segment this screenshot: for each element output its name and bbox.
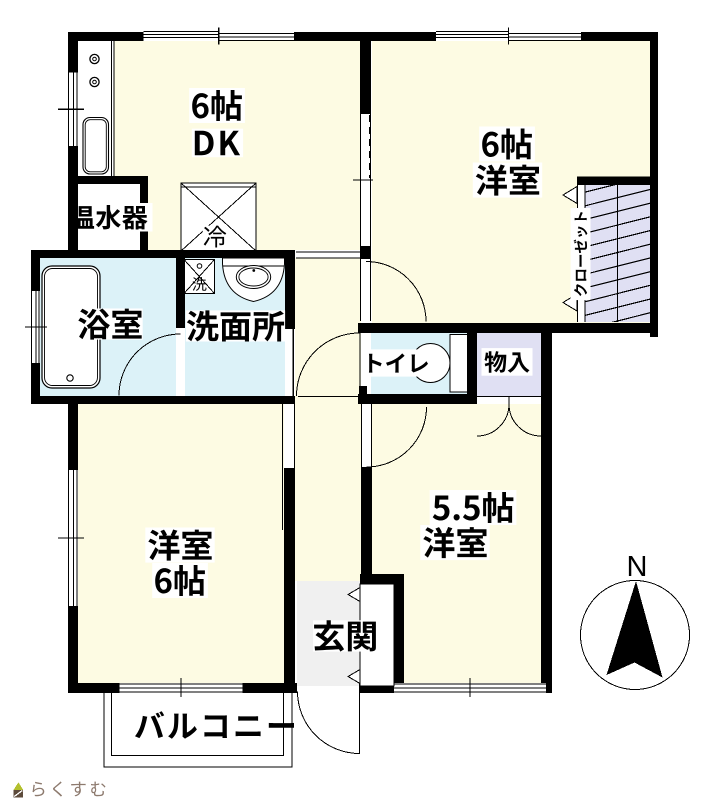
svg-text:N: N xyxy=(627,551,648,583)
